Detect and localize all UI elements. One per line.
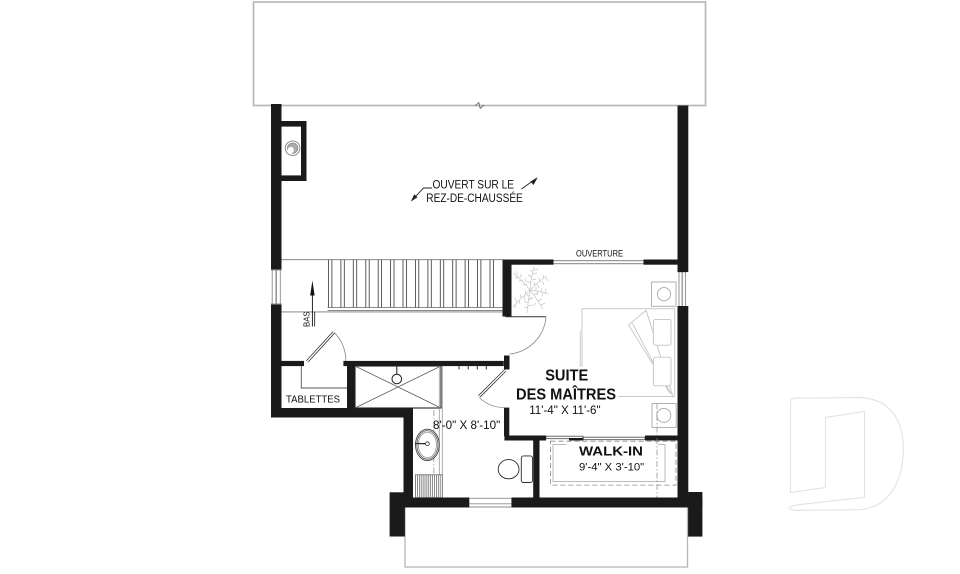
svg-text:DES MAÎTRES: DES MAÎTRES	[516, 386, 616, 404]
svg-text:SUITE: SUITE	[545, 368, 588, 385]
svg-text:9'-4" X 3'-10": 9'-4" X 3'-10"	[579, 462, 644, 474]
svg-text:OUVERTURE: OUVERTURE	[576, 249, 623, 259]
svg-text:11'-4" X 11'-6": 11'-4" X 11'-6"	[529, 403, 600, 417]
svg-text:BAS: BAS	[303, 311, 312, 327]
svg-text:REZ-DE-CHAUSSÉE: REZ-DE-CHAUSSÉE	[426, 190, 523, 205]
svg-text:TABLETTES: TABLETTES	[286, 395, 341, 406]
svg-text:8'-0" X 8'-10": 8'-0" X 8'-10"	[433, 419, 500, 432]
svg-text:WALK-IN: WALK-IN	[579, 445, 643, 459]
svg-text:OUVERT SUR LE: OUVERT SUR LE	[433, 177, 515, 191]
